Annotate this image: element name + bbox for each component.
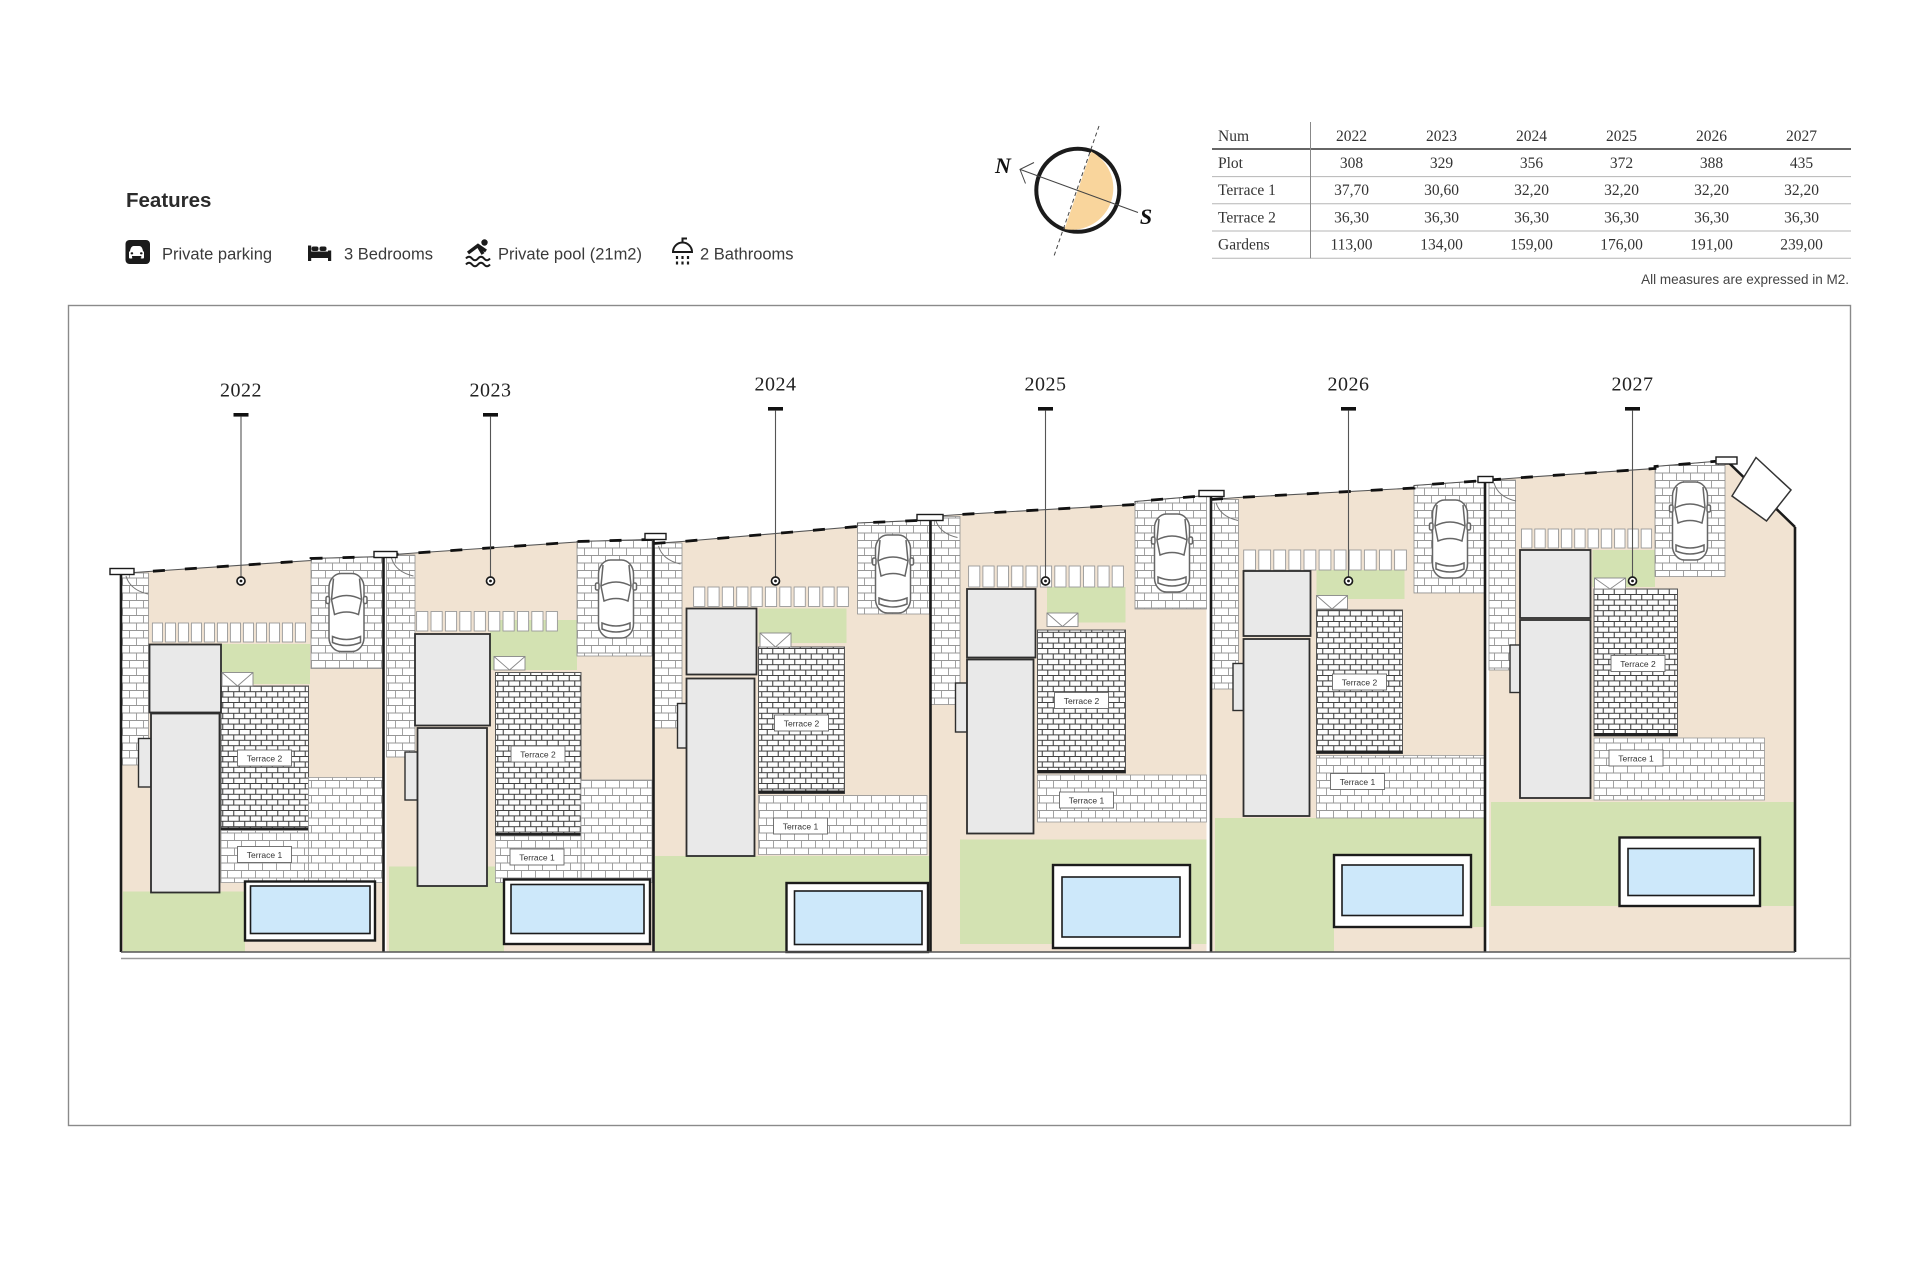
svg-text:2022: 2022 bbox=[1336, 128, 1367, 145]
svg-text:2025: 2025 bbox=[1606, 128, 1637, 145]
svg-text:32,20: 32,20 bbox=[1784, 182, 1819, 199]
svg-text:191,00: 191,00 bbox=[1690, 237, 1733, 254]
svg-text:113,00: 113,00 bbox=[1330, 237, 1372, 254]
svg-text:Terrace 2: Terrace 2 bbox=[1064, 696, 1100, 706]
svg-text:2023: 2023 bbox=[470, 380, 512, 402]
svg-text:Terrace 2: Terrace 2 bbox=[784, 719, 820, 729]
svg-text:Terrace 1: Terrace 1 bbox=[1618, 754, 1654, 764]
svg-text:2027: 2027 bbox=[1612, 374, 1654, 396]
svg-text:2025: 2025 bbox=[1025, 374, 1067, 396]
svg-text:30,60: 30,60 bbox=[1424, 182, 1459, 199]
svg-text:388: 388 bbox=[1700, 155, 1724, 172]
svg-text:329: 329 bbox=[1430, 155, 1454, 172]
svg-text:Terrace 2: Terrace 2 bbox=[520, 750, 556, 760]
svg-text:159,00: 159,00 bbox=[1510, 237, 1553, 254]
svg-text:239,00: 239,00 bbox=[1780, 237, 1823, 254]
svg-text:2027: 2027 bbox=[1786, 128, 1817, 145]
svg-text:36,30: 36,30 bbox=[1784, 209, 1819, 226]
svg-text:Terrace 1: Terrace 1 bbox=[783, 822, 819, 832]
svg-text:N: N bbox=[994, 153, 1012, 178]
svg-text:36,30: 36,30 bbox=[1604, 209, 1639, 226]
svg-text:32,20: 32,20 bbox=[1604, 182, 1639, 199]
svg-text:435: 435 bbox=[1790, 155, 1814, 172]
svg-text:36,30: 36,30 bbox=[1424, 209, 1459, 226]
svg-text:Terrace 1: Terrace 1 bbox=[1218, 182, 1276, 199]
svg-text:37,70: 37,70 bbox=[1334, 182, 1369, 199]
svg-text:134,00: 134,00 bbox=[1420, 237, 1463, 254]
svg-text:Terrace 2: Terrace 2 bbox=[247, 754, 283, 764]
svg-text:2026: 2026 bbox=[1328, 374, 1370, 396]
svg-text:3 Bedrooms: 3 Bedrooms bbox=[344, 246, 433, 264]
svg-text:Terrace 1: Terrace 1 bbox=[1340, 777, 1376, 787]
svg-text:2 Bathrooms: 2 Bathrooms bbox=[700, 246, 794, 264]
svg-text:2024: 2024 bbox=[1516, 128, 1547, 145]
svg-text:36,30: 36,30 bbox=[1334, 209, 1369, 226]
svg-text:Gardens: Gardens bbox=[1218, 237, 1270, 254]
svg-text:308: 308 bbox=[1340, 155, 1364, 172]
svg-text:Terrace 1: Terrace 1 bbox=[519, 853, 555, 863]
svg-text:Features: Features bbox=[126, 189, 211, 212]
svg-text:Num: Num bbox=[1218, 128, 1249, 145]
svg-text:2022: 2022 bbox=[220, 380, 262, 402]
svg-text:All measures are expressed in: All measures are expressed in M2. bbox=[1641, 272, 1849, 287]
svg-text:372: 372 bbox=[1610, 155, 1633, 172]
svg-text:356: 356 bbox=[1520, 155, 1544, 172]
svg-text:Plot: Plot bbox=[1218, 155, 1244, 172]
svg-text:32,20: 32,20 bbox=[1694, 182, 1729, 199]
svg-text:2024: 2024 bbox=[755, 374, 797, 396]
svg-text:Private parking: Private parking bbox=[162, 246, 272, 264]
svg-text:Terrace 2: Terrace 2 bbox=[1620, 659, 1656, 669]
svg-text:Terrace 2: Terrace 2 bbox=[1218, 209, 1276, 226]
svg-text:2023: 2023 bbox=[1426, 128, 1457, 145]
svg-text:Terrace 1: Terrace 1 bbox=[1069, 796, 1105, 806]
svg-text:176,00: 176,00 bbox=[1600, 237, 1643, 254]
svg-text:Terrace 2: Terrace 2 bbox=[1342, 678, 1378, 688]
svg-text:2026: 2026 bbox=[1696, 128, 1727, 145]
svg-text:Terrace 1: Terrace 1 bbox=[247, 850, 283, 860]
svg-text:32,20: 32,20 bbox=[1514, 182, 1549, 199]
svg-text:Private pool (21m2): Private pool (21m2) bbox=[498, 246, 642, 264]
svg-text:S: S bbox=[1140, 204, 1152, 229]
svg-text:36,30: 36,30 bbox=[1694, 209, 1729, 226]
svg-text:36,30: 36,30 bbox=[1514, 209, 1549, 226]
